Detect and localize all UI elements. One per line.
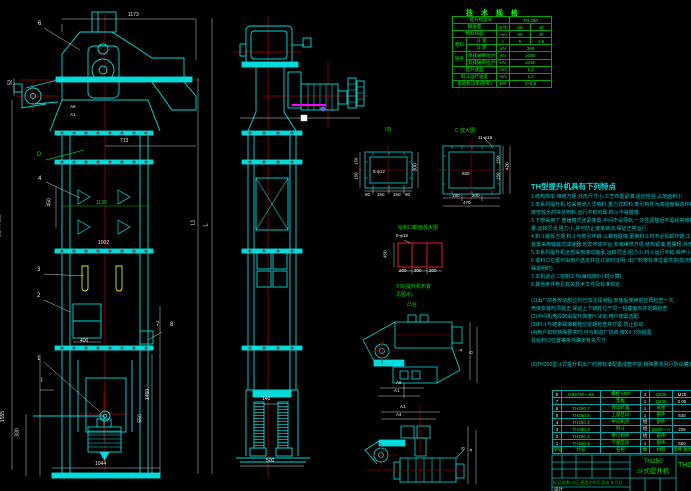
sv2-dim-a1: A1 [400, 405, 406, 410]
note-line: 殊说明时). [531, 265, 691, 273]
dim-52: 52 [8, 80, 13, 86]
feed-detail-title: 给料口断面放大图 [398, 226, 438, 231]
tail-arm [22, 80, 58, 108]
note-line: (2)中间机壳段数由提升高度H 决定,用户按需选配. [531, 313, 691, 321]
title-block: TH250 斗式提升机 [630, 457, 676, 477]
dim-400: 400 [80, 339, 88, 344]
dim-1450: 1450 [146, 389, 151, 400]
balloon-6: 6 [38, 21, 41, 27]
view-label-c: C 放大图 [455, 129, 475, 134]
sv1-dim-a: a [459, 349, 464, 352]
dim-300: 300 [414, 163, 419, 171]
note-line: 6.进料口位置可由用户选定并在订货时注明, 出厂时按标准位置供货(如无特 [531, 257, 691, 265]
spec-row: 双排破断拉力 kN ≥250 [453, 59, 552, 66]
revision-row: 标记 处数 分区 更改文件号 签名 年月日 [553, 480, 629, 486]
drive-side-view-a [363, 315, 477, 398]
drive-side-view-b [365, 404, 476, 486]
spec-row: 提升速度 m/s 1.4 [453, 66, 552, 73]
balloon-2: 2 [37, 293, 40, 299]
note-line: 3.下部采用了 重锤箱式张紧装置,中间不设导轨,一次性调整后不需经常维护,大大减… [531, 217, 691, 225]
sv1-dim-b: B [469, 351, 474, 354]
dim-1002: 1002 [98, 241, 109, 246]
designer-label: 设计 [554, 487, 563, 491]
cad-model-space[interactable]: 1173 6 52 A8 A1 713 D 4 450 1130 1002 3 … [0, 0, 691, 491]
note-line [531, 289, 691, 297]
bucket-glyphs [78, 190, 130, 234]
dim-a8: A8 [70, 105, 76, 110]
dim-150-a: 150 [355, 157, 360, 165]
dim-f-300: 300 [414, 269, 422, 274]
spec-row: 物料 斗 宽 t 5 1.5 [453, 38, 552, 45]
bom-row: 1 TH250.1 下部区段 1 部件 650 [553, 440, 691, 447]
sv1-dim-a8: A8 [396, 381, 402, 386]
sv2-dim-a: a [469, 449, 474, 452]
balloon-7: 7 [156, 322, 159, 328]
side-view [232, 16, 368, 478]
notes-block: 1.结构简单,维修方便,外形尺寸小,工艺布置紧凑,适应性强,占地面积小. 2.本… [531, 193, 691, 389]
note-line: (4)用户如有特殊要求时,可与制造厂协商,按XX,Y向视图, [531, 329, 691, 337]
head-housing [62, 32, 184, 100]
dim-140: 140 [262, 397, 270, 402]
drive-platform [56, 77, 192, 82]
dim-1555: 1555 [1, 411, 6, 422]
note-line: 4.料斗装拆方便,料斗与牵引环链 以螺栓联接,更换料斗时不必拆卸环链,工作可靠,… [531, 233, 691, 241]
bom-row: 8 GB5782—86 螺栓 M20 4 Q235 M20 [553, 391, 691, 398]
spec-row: 斗 距 kN 380 [453, 45, 552, 52]
note-line: (9)TH250型斗式提升机出厂时按标准配置成套供货,特殊要求另行协议确定. [531, 361, 691, 369]
note-line: 装置采用轴装式减速器,省去传动平台,安装维修方便,结构紧凑,重量轻,外形尺寸小. [531, 241, 691, 249]
takeup-arm [33, 416, 104, 426]
dim-c-150a: 150 [497, 156, 502, 164]
note-line: 1.结构简单,维修方便,外形尺寸小,工艺布置紧凑,适应性强,占地面积小. [531, 193, 691, 201]
dim-c-200: 200 [472, 194, 480, 199]
dim-150-b: 150 [355, 172, 360, 180]
note-line: (3)料斗与链条联接螺栓应定期检查并拧紧,防止松动. [531, 321, 691, 329]
note-y-line1: Y向(提升机布置 [396, 285, 431, 290]
flange-detail-i [359, 146, 418, 194]
spec-row: 物料块度 mm 50 40 [453, 31, 552, 38]
drawing-number: TH2 [678, 462, 691, 469]
dim-l: L [204, 223, 210, 226]
spec-row: 输送量 m³/h 25 40 [453, 24, 552, 31]
dim-c-190: 190 [452, 194, 460, 199]
dim-a1: A1 [70, 113, 76, 118]
note-line [531, 353, 691, 361]
bom-table: 8 GB5782—86 螺栓 M20 4 Q235 M20 7 垫板 1 Q23… [552, 390, 691, 454]
note-line [531, 345, 691, 353]
hole-callout-8-12: 8-φ12 [373, 170, 385, 175]
axis-label-h: H(提升高度) [0, 214, 2, 241]
bom-row: 5 TH250.6 上部区段 1 部件 635 [553, 412, 691, 419]
view-label-d: D [37, 152, 41, 158]
hole-callout-8-18: 8-φ18 [396, 234, 408, 239]
view-label-i: I向 [385, 128, 391, 133]
title-block-model: TH250 [630, 457, 676, 467]
notes-title: TH型提升机具有下列特点 [531, 181, 616, 192]
head-casing-side [246, 26, 292, 64]
sv2-dim-b: B [461, 447, 466, 450]
bom-row: 6 TH250.7 传动装置 1 总图 [553, 405, 691, 412]
dim-i-90a: 90 [365, 193, 370, 198]
dim-f-200a: 200 [399, 269, 407, 274]
spec-row: 链条 单排破断拉力 kN ≥380 [453, 52, 552, 59]
note-line: 2.本系列提升机 均采用流入式喂料,重力式卸料,牵引构件为高强度锻造环链,耐磨损… [531, 201, 691, 209]
balloon-3: 3 [37, 267, 40, 273]
note-line: 量,运转灵活,阻力小,并可防止链条跳动,保证正常运行. [531, 225, 691, 233]
bom-row: 3 TH250.3 料斗 组 Q235—A 205 [553, 426, 691, 433]
bom-row: 7 垫板 1 Q235 0.05 [553, 398, 691, 405]
balloon-4: 4 [38, 176, 41, 182]
title-block-product-name: 斗式提升机 [630, 467, 676, 477]
note-line: 及给料口位置等条件确定有关尺寸. [531, 337, 691, 345]
dim-1173: 1173 [128, 13, 139, 18]
spec-row: 料斗运行速度 m/s 1.2 [453, 73, 552, 80]
dim-1044: 1044 [95, 462, 106, 467]
label-boss: 凸台 [407, 303, 417, 308]
head-top-box [92, 12, 116, 32]
dim-c-470: 470 [463, 201, 471, 206]
dim-330: 330 [16, 428, 21, 436]
dim-1130: 1130 [96, 201, 107, 206]
dim-i-90b: 90 [405, 193, 410, 198]
dim-450: 450 [48, 198, 53, 206]
front-view-dims [12, 18, 212, 476]
motor [301, 84, 338, 110]
sv1-dim-a1: A1 [394, 389, 400, 394]
guide-rail [278, 402, 288, 448]
dim-713: 713 [120, 139, 128, 144]
hole-callout-11-18: 11-φ18 [478, 136, 492, 141]
balloon-8: 8 [170, 322, 173, 328]
spec-row: 电动机功率(参考) kW 4~5.5 [453, 80, 552, 87]
note-line: 琢性较大的块状物料,运行平稳可靠,料斗不易脱落. [531, 209, 691, 217]
guide-rail [254, 402, 264, 448]
dim-i-150a: 150 [377, 193, 385, 198]
note-line: 7.本机适合二班制工作(每班按8小时计算). [531, 273, 691, 281]
bucket-guides [82, 266, 122, 291]
note-line: 5.本系列提升机全部采用滚动轴承,运转灵活,阻力小,料斗运行平稳,噪声小,密封性… [531, 249, 691, 257]
gearbox [288, 72, 301, 108]
dim-c-150b: 150 [497, 172, 502, 180]
note-line: (1)出厂前各传动部位均已加注润滑脂,安装后使用前应再检查一次, [531, 297, 691, 305]
sv2-dim-a4: A4 [396, 413, 402, 418]
note-y-line2: 见图示) [396, 293, 413, 298]
balloon-1: 1 [37, 356, 40, 362]
section-marker-i: I [41, 378, 43, 384]
dim-500: 500 [266, 459, 274, 464]
dim-i-150b: 150 [393, 193, 401, 198]
spec-table: 提升机型号 TH 250 输送量 m³/h 25 40 物料块度 mm 50 4… [452, 16, 552, 88]
spec-row: 提升机型号 TH 250 [453, 17, 552, 24]
dim-650: 650 [462, 172, 470, 177]
dim-c-420: 420 [506, 162, 511, 170]
bom-footer-row: 序号 代号 名称 数 材料 单件 总计 [553, 447, 691, 454]
discharge-chute [152, 82, 196, 110]
dim-550: 550 [139, 414, 144, 422]
dim-450b: 450 [384, 250, 389, 258]
note-line: 8.其他条件参见有关技术文件及标准规定. [531, 281, 691, 289]
base-plate [52, 473, 160, 478]
dim-f-200b: 200 [429, 269, 437, 274]
note-line: 壳体安装时须找正,保证上下链轮位于同一铅垂面内并定期检查. [531, 305, 691, 313]
dim-l1: L1 [191, 220, 196, 226]
bom-row: 4 TH250.4 中间机壳 组 部件 [553, 419, 691, 426]
bom-row: 2 TH250.2 牵引构件 组 部件 [553, 433, 691, 440]
